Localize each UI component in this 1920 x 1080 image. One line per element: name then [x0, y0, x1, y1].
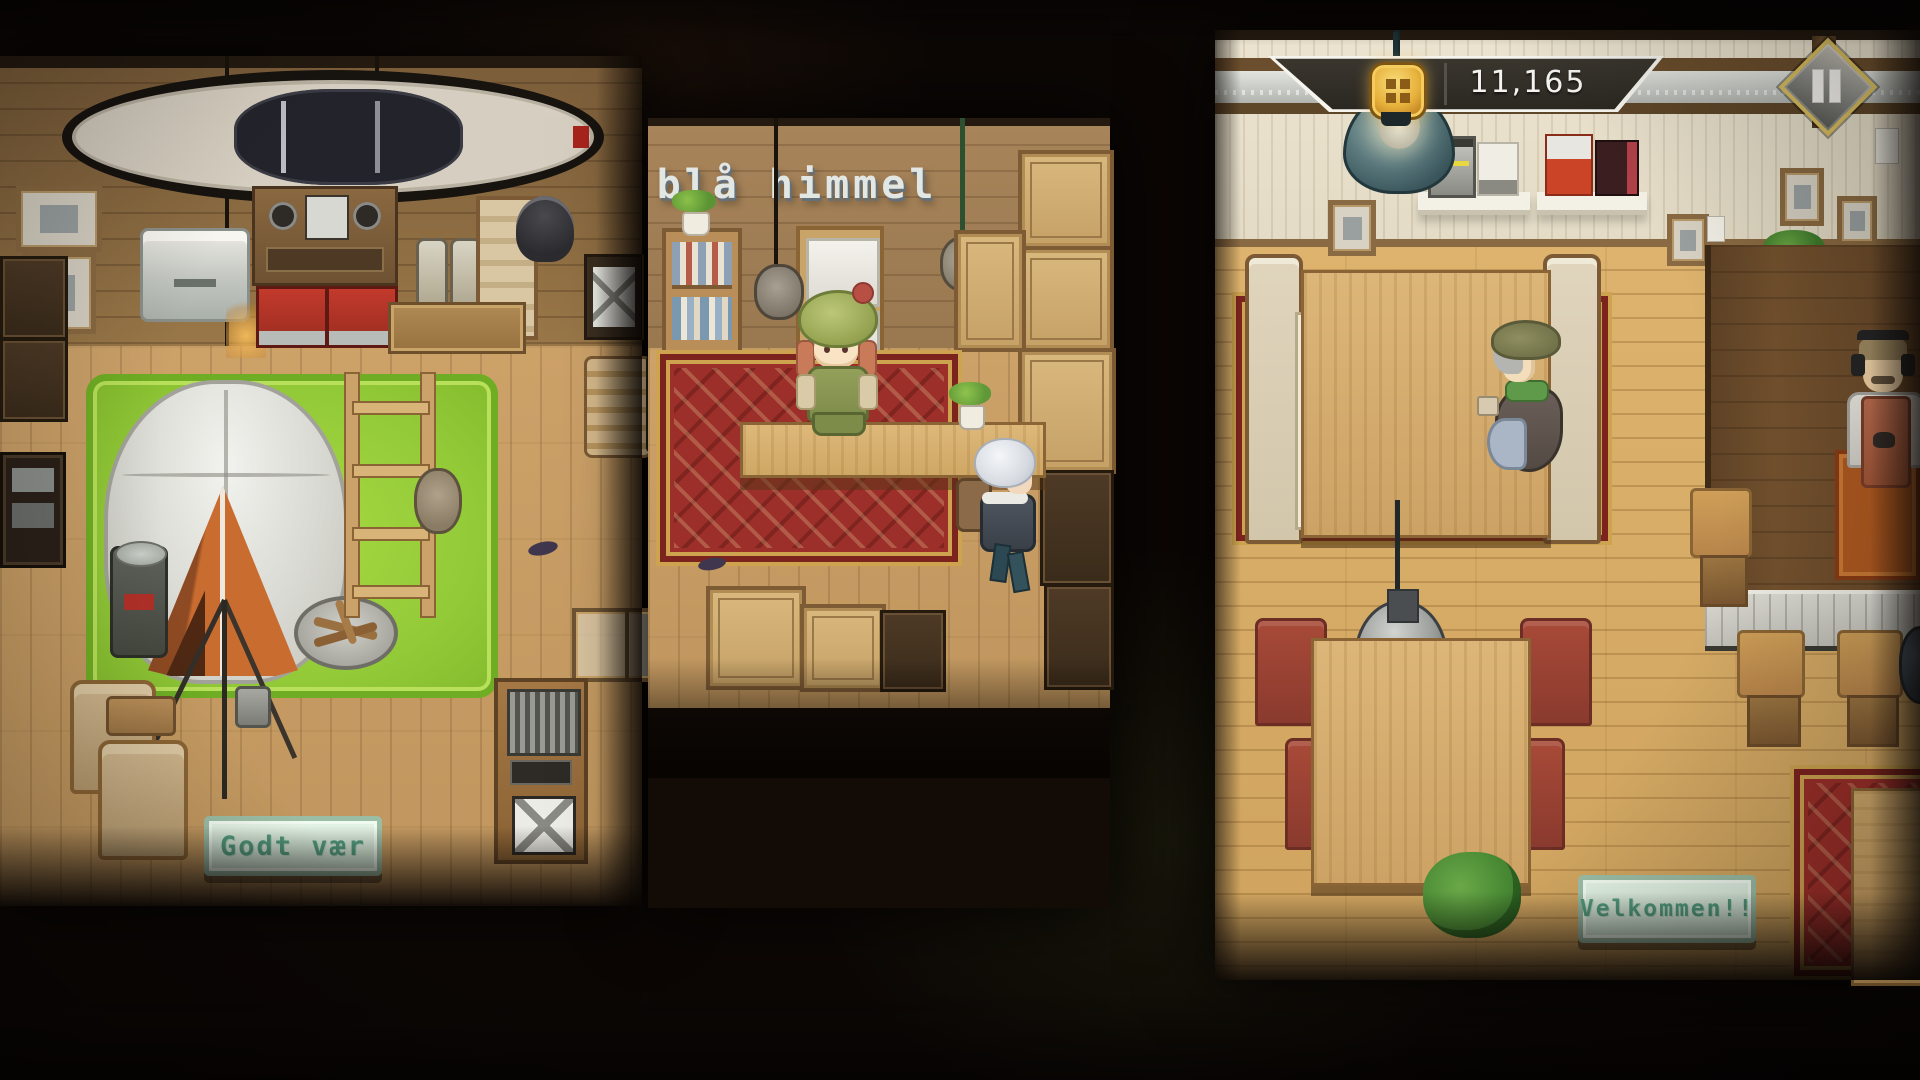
- crate: [880, 610, 946, 692]
- fan-box: [584, 254, 644, 340]
- bush-plant: [1423, 852, 1521, 938]
- cafe-sign: Velkommen!!: [1578, 875, 1756, 943]
- bookshelf: [662, 228, 742, 356]
- note-card: [1875, 128, 1899, 164]
- mid-shop-building: blå himmel: [648, 118, 1110, 908]
- sleeve: [858, 374, 878, 410]
- canoe-cockpit: [234, 89, 464, 185]
- currency-value: 11,165: [1438, 65, 1618, 100]
- espresso-maker: [1595, 140, 1639, 196]
- green-scarf: [1505, 380, 1549, 402]
- barista-npc[interactable]: [1843, 330, 1920, 490]
- hanging-kettle: [754, 264, 804, 320]
- radio-shelf: [252, 186, 398, 286]
- picture-frame: [16, 186, 102, 252]
- sleeve: [796, 374, 816, 410]
- headphones-icon: [1901, 354, 1915, 376]
- hanging-pot: [414, 468, 462, 534]
- hud-currency-bar: 11,165: [1268, 56, 1664, 112]
- picture-frame: [1328, 200, 1376, 256]
- counter-plant: [948, 386, 992, 426]
- camp-chair: [98, 740, 188, 860]
- canoe-stern-tip: [573, 126, 589, 149]
- side-table: [388, 302, 526, 354]
- game-scene: Godt vær blå himmel: [0, 0, 1920, 1080]
- menu-card: [1477, 142, 1519, 196]
- bar-stool: [1837, 630, 1903, 698]
- crate: [0, 256, 68, 340]
- cup: [1477, 396, 1499, 416]
- pause-icon: [1812, 69, 1840, 101]
- crate: [1040, 470, 1114, 586]
- canoe-thwart: [375, 101, 380, 174]
- crate: [1018, 246, 1114, 352]
- player-character[interactable]: [954, 436, 1050, 596]
- left-shop-roofline: [0, 56, 642, 68]
- left-shop-sign-label: Godt vær: [220, 831, 366, 862]
- stock-pot: [516, 196, 574, 262]
- kettle-cord: [774, 118, 778, 264]
- picture-frame: [1667, 214, 1709, 266]
- elderly-npc[interactable]: [1477, 326, 1567, 486]
- picture-frame: [1837, 196, 1877, 246]
- glass-lantern: [416, 238, 448, 308]
- camp-table: [106, 696, 176, 736]
- grill-cart: [494, 678, 588, 864]
- left-shop-building: Godt vær: [0, 56, 642, 906]
- firewood-pile: [584, 356, 652, 458]
- storage-cabinet: [0, 452, 66, 568]
- left-shop-sign: Godt vær: [204, 816, 382, 876]
- apron-cat-print: [1873, 432, 1895, 448]
- lamp-cap: [1381, 112, 1411, 126]
- mustache: [1871, 376, 1895, 384]
- pause-button[interactable]: [1776, 35, 1876, 135]
- crate: [954, 230, 1026, 352]
- picture-frame: [1780, 168, 1824, 226]
- note-card: [1707, 216, 1725, 242]
- crate: [706, 586, 806, 690]
- blanket: [1487, 418, 1527, 470]
- crate: [0, 338, 68, 422]
- canoe-thwart: [281, 101, 286, 174]
- cafe-building: Velkommen!!: [1215, 30, 1920, 980]
- crate: [1018, 150, 1114, 250]
- crate: [1044, 584, 1114, 690]
- red-tin: [1545, 134, 1593, 196]
- corner-table: [1851, 788, 1920, 986]
- cafe-sign-label: Velkommen!!: [1580, 896, 1754, 922]
- crate: [800, 604, 886, 692]
- legs: [1007, 551, 1031, 593]
- kettle-cord-green: [960, 118, 965, 236]
- potted-plant: [672, 196, 716, 232]
- white-hair: [974, 438, 1036, 488]
- headphones-icon: [1851, 354, 1865, 376]
- dining-table-lower: [1311, 638, 1531, 886]
- bar-stool: [1690, 488, 1752, 558]
- shopkeeper-npc[interactable]: [798, 294, 874, 438]
- lamp-cord-through-hud: [1393, 32, 1398, 56]
- bar-stool: [1737, 630, 1805, 698]
- hat-pom: [852, 282, 874, 304]
- red-field-radio: [256, 286, 328, 348]
- olive-hat: [1491, 320, 1561, 360]
- skirt: [812, 412, 866, 436]
- hanging-canoe: [62, 70, 604, 204]
